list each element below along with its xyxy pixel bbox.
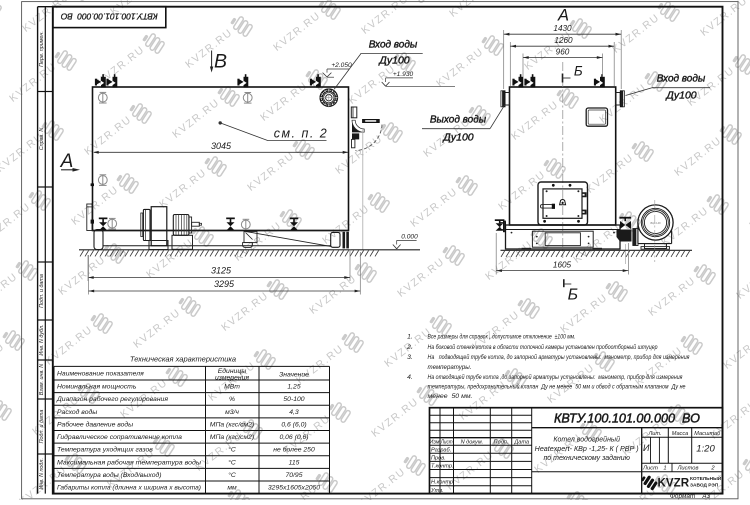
svg-text:КВТУ.100.101.00.000 ВО: КВТУ.100.101.00.000 ВО (60, 12, 157, 22)
svg-text:2.: 2. (406, 344, 413, 351)
svg-text:1605: 1605 (553, 260, 572, 269)
svg-text:3.: 3. (407, 354, 413, 361)
svg-text:Вход воды: Вход воды (369, 40, 418, 51)
svg-text:Т.контр.: Т.контр. (431, 464, 454, 470)
svg-text:Н.контр.: Н.контр. (431, 480, 455, 486)
svg-text:+2.050: +2.050 (331, 62, 352, 69)
svg-text:Техническая характеристика: Техническая характеристика (130, 355, 236, 364)
svg-text:Подп.: Подп. (494, 440, 509, 446)
svg-text:Температура воды (Вход/выход): Температура воды (Вход/выход) (57, 471, 162, 479)
svg-text:Масштаб: Масштаб (694, 431, 721, 437)
svg-text:Диапазон рабочего регулировани: Диапазон рабочего регулирования (56, 395, 168, 403)
svg-text:Лист: Лист (642, 465, 658, 471)
svg-text:Рабочее давление воды: Рабочее давление воды (57, 420, 133, 428)
svg-text:МПа (кгс/см2): МПа (кгс/см2) (210, 434, 254, 441)
svg-text:Гидравлическое сопративление к: Гидравлическое сопративление котла (57, 433, 182, 441)
svg-text:Температура уходящих газов: Температура уходящих газов (57, 446, 153, 454)
svg-text:Б: Б (574, 64, 583, 79)
svg-text:3045: 3045 (211, 141, 232, 151)
svg-text:Расход воды: Расход воды (57, 408, 97, 416)
svg-text:Подп. и дата: Подп. и дата (39, 274, 45, 308)
svg-text:4.: 4. (407, 374, 413, 381)
svg-text:Вход воды: Вход воды (657, 74, 706, 85)
svg-text:1260: 1260 (554, 36, 573, 45)
svg-text:На подводящей трубе котла, д: На подводящей трубе котла, до запорной а… (428, 353, 690, 361)
svg-text:Наименование показателя: Наименование показателя (57, 371, 144, 378)
svg-text:Разраб.: Разраб. (431, 447, 451, 453)
svg-text:ВЦ14-46: ВЦ14-46 (650, 221, 661, 225)
svg-text:А: А (60, 151, 74, 172)
svg-text:Инв. N подл.: Инв. N подл. (39, 458, 45, 490)
svg-text:1:20: 1:20 (696, 444, 715, 455)
svg-text:Взам. инв. N: Взам. инв. N (39, 364, 45, 396)
svg-text:см. п. 2: см. п. 2 (274, 127, 329, 141)
svg-text:не более 250: не более 250 (273, 446, 315, 454)
svg-text:На отводящей трубе котла ,до з: На отводящей трубе котла ,до запорной ар… (428, 373, 683, 381)
svg-text:0,6 (6,0): 0,6 (6,0) (281, 421, 306, 428)
svg-text:Ду100: Ду100 (442, 132, 473, 144)
svg-text:Котел водогрейный: Котел водогрейный (553, 436, 620, 444)
svg-text:ЗАВОД РЭП: ЗАВОД РЭП (690, 483, 719, 489)
svg-text:Лит.: Лит. (647, 431, 661, 437)
svg-text:1.: 1. (407, 334, 413, 341)
svg-text:Габариты котла (длинна х ширин: Габариты котла (длинна х ширина х высота… (57, 484, 201, 492)
svg-text:3295х1605х2050: 3295х1605х2050 (268, 485, 320, 492)
svg-text:м3/ч: м3/ч (225, 409, 239, 416)
svg-text:Максимальная рабочая температу: Максимальная рабочая температура воды (57, 458, 201, 466)
svg-text:мм: мм (227, 485, 237, 492)
svg-text:Значение: Значение (279, 372, 309, 379)
svg-text:измерения: измерения (215, 374, 249, 381)
svg-text:Масса: Масса (672, 431, 689, 437)
svg-text:°С: °С (228, 471, 236, 479)
svg-text:Формат А3: Формат А3 (670, 493, 711, 500)
svg-text:температуры.: температуры. (428, 364, 472, 371)
svg-text:Ду100: Ду100 (665, 90, 696, 102)
svg-text:KVZR: KVZR (658, 476, 690, 489)
svg-text:%: % (229, 396, 235, 403)
svg-text:+1.930: +1.930 (393, 71, 414, 78)
svg-text:В: В (214, 51, 227, 73)
svg-text:3125: 3125 (211, 266, 232, 276)
svg-text:0.000: 0.000 (401, 233, 418, 240)
svg-text:Инв. N дубл.: Инв. N дубл. (39, 324, 45, 355)
svg-text:1: 1 (663, 465, 666, 471)
svg-text:менее 50 мм.: менее 50 мм. (428, 393, 473, 400)
svg-text:960: 960 (556, 48, 570, 57)
svg-text:Подп. и дата: Подп. и дата (39, 410, 45, 444)
svg-text:А: А (557, 7, 569, 25)
svg-text:Утв.: Утв. (430, 488, 444, 494)
svg-text:3295: 3295 (214, 279, 235, 289)
svg-text:°С: °С (228, 446, 236, 454)
svg-text:Справ. N: Справ. N (39, 128, 45, 151)
svg-text:Лист: Лист (440, 440, 453, 446)
svg-text:Все размеры для справок , допу: Все размеры для справок , допустимое отк… (428, 333, 576, 341)
svg-text:Изм: Изм (430, 440, 440, 446)
svg-text:температуры, предохранительный: температуры, предохранительный клапан Ду… (428, 383, 686, 391)
svg-text:70/95: 70/95 (285, 472, 302, 479)
svg-text:по техническому заданию: по техническому заданию (543, 454, 630, 462)
svg-text:115: 115 (289, 459, 300, 466)
svg-text:Ду100: Ду100 (378, 55, 409, 67)
svg-text:МВт: МВт (224, 384, 240, 391)
svg-text:КВТУ.100.101.00.000 ВО: КВТУ.100.101.00.000 ВО (554, 412, 700, 426)
svg-text:50-100: 50-100 (283, 396, 304, 403)
svg-text:1,25: 1,25 (287, 384, 300, 391)
svg-text:Пров.: Пров. (431, 455, 446, 461)
svg-text:4,3: 4,3 (289, 409, 299, 416)
svg-text:Heatexpert- КВр -1,25- К ( РВР: Heatexpert- КВр -1,25- К ( РВР ) (535, 446, 639, 453)
svg-text:И: И (643, 443, 650, 453)
svg-text:1430: 1430 (553, 24, 572, 33)
svg-text:Листов: Листов (676, 465, 698, 471)
svg-text:Дата: Дата (513, 440, 529, 446)
svg-text:На боковой стенке котла в обла: На боковой стенке котла в области топочн… (428, 343, 658, 351)
svg-text:Номинальная мощность: Номинальная мощность (57, 384, 137, 391)
svg-text:0,06 (0,6): 0,06 (0,6) (279, 434, 308, 441)
svg-text:°С: °С (228, 458, 236, 466)
svg-text:МПа (кгс/см2): МПа (кгс/см2) (210, 421, 254, 428)
svg-text:Б: Б (568, 287, 578, 304)
svg-text:N докум.: N докум. (461, 440, 484, 446)
svg-text:Выход воды: Выход воды (430, 115, 487, 126)
svg-text:Перв. примен.: Перв. примен. (39, 31, 45, 67)
